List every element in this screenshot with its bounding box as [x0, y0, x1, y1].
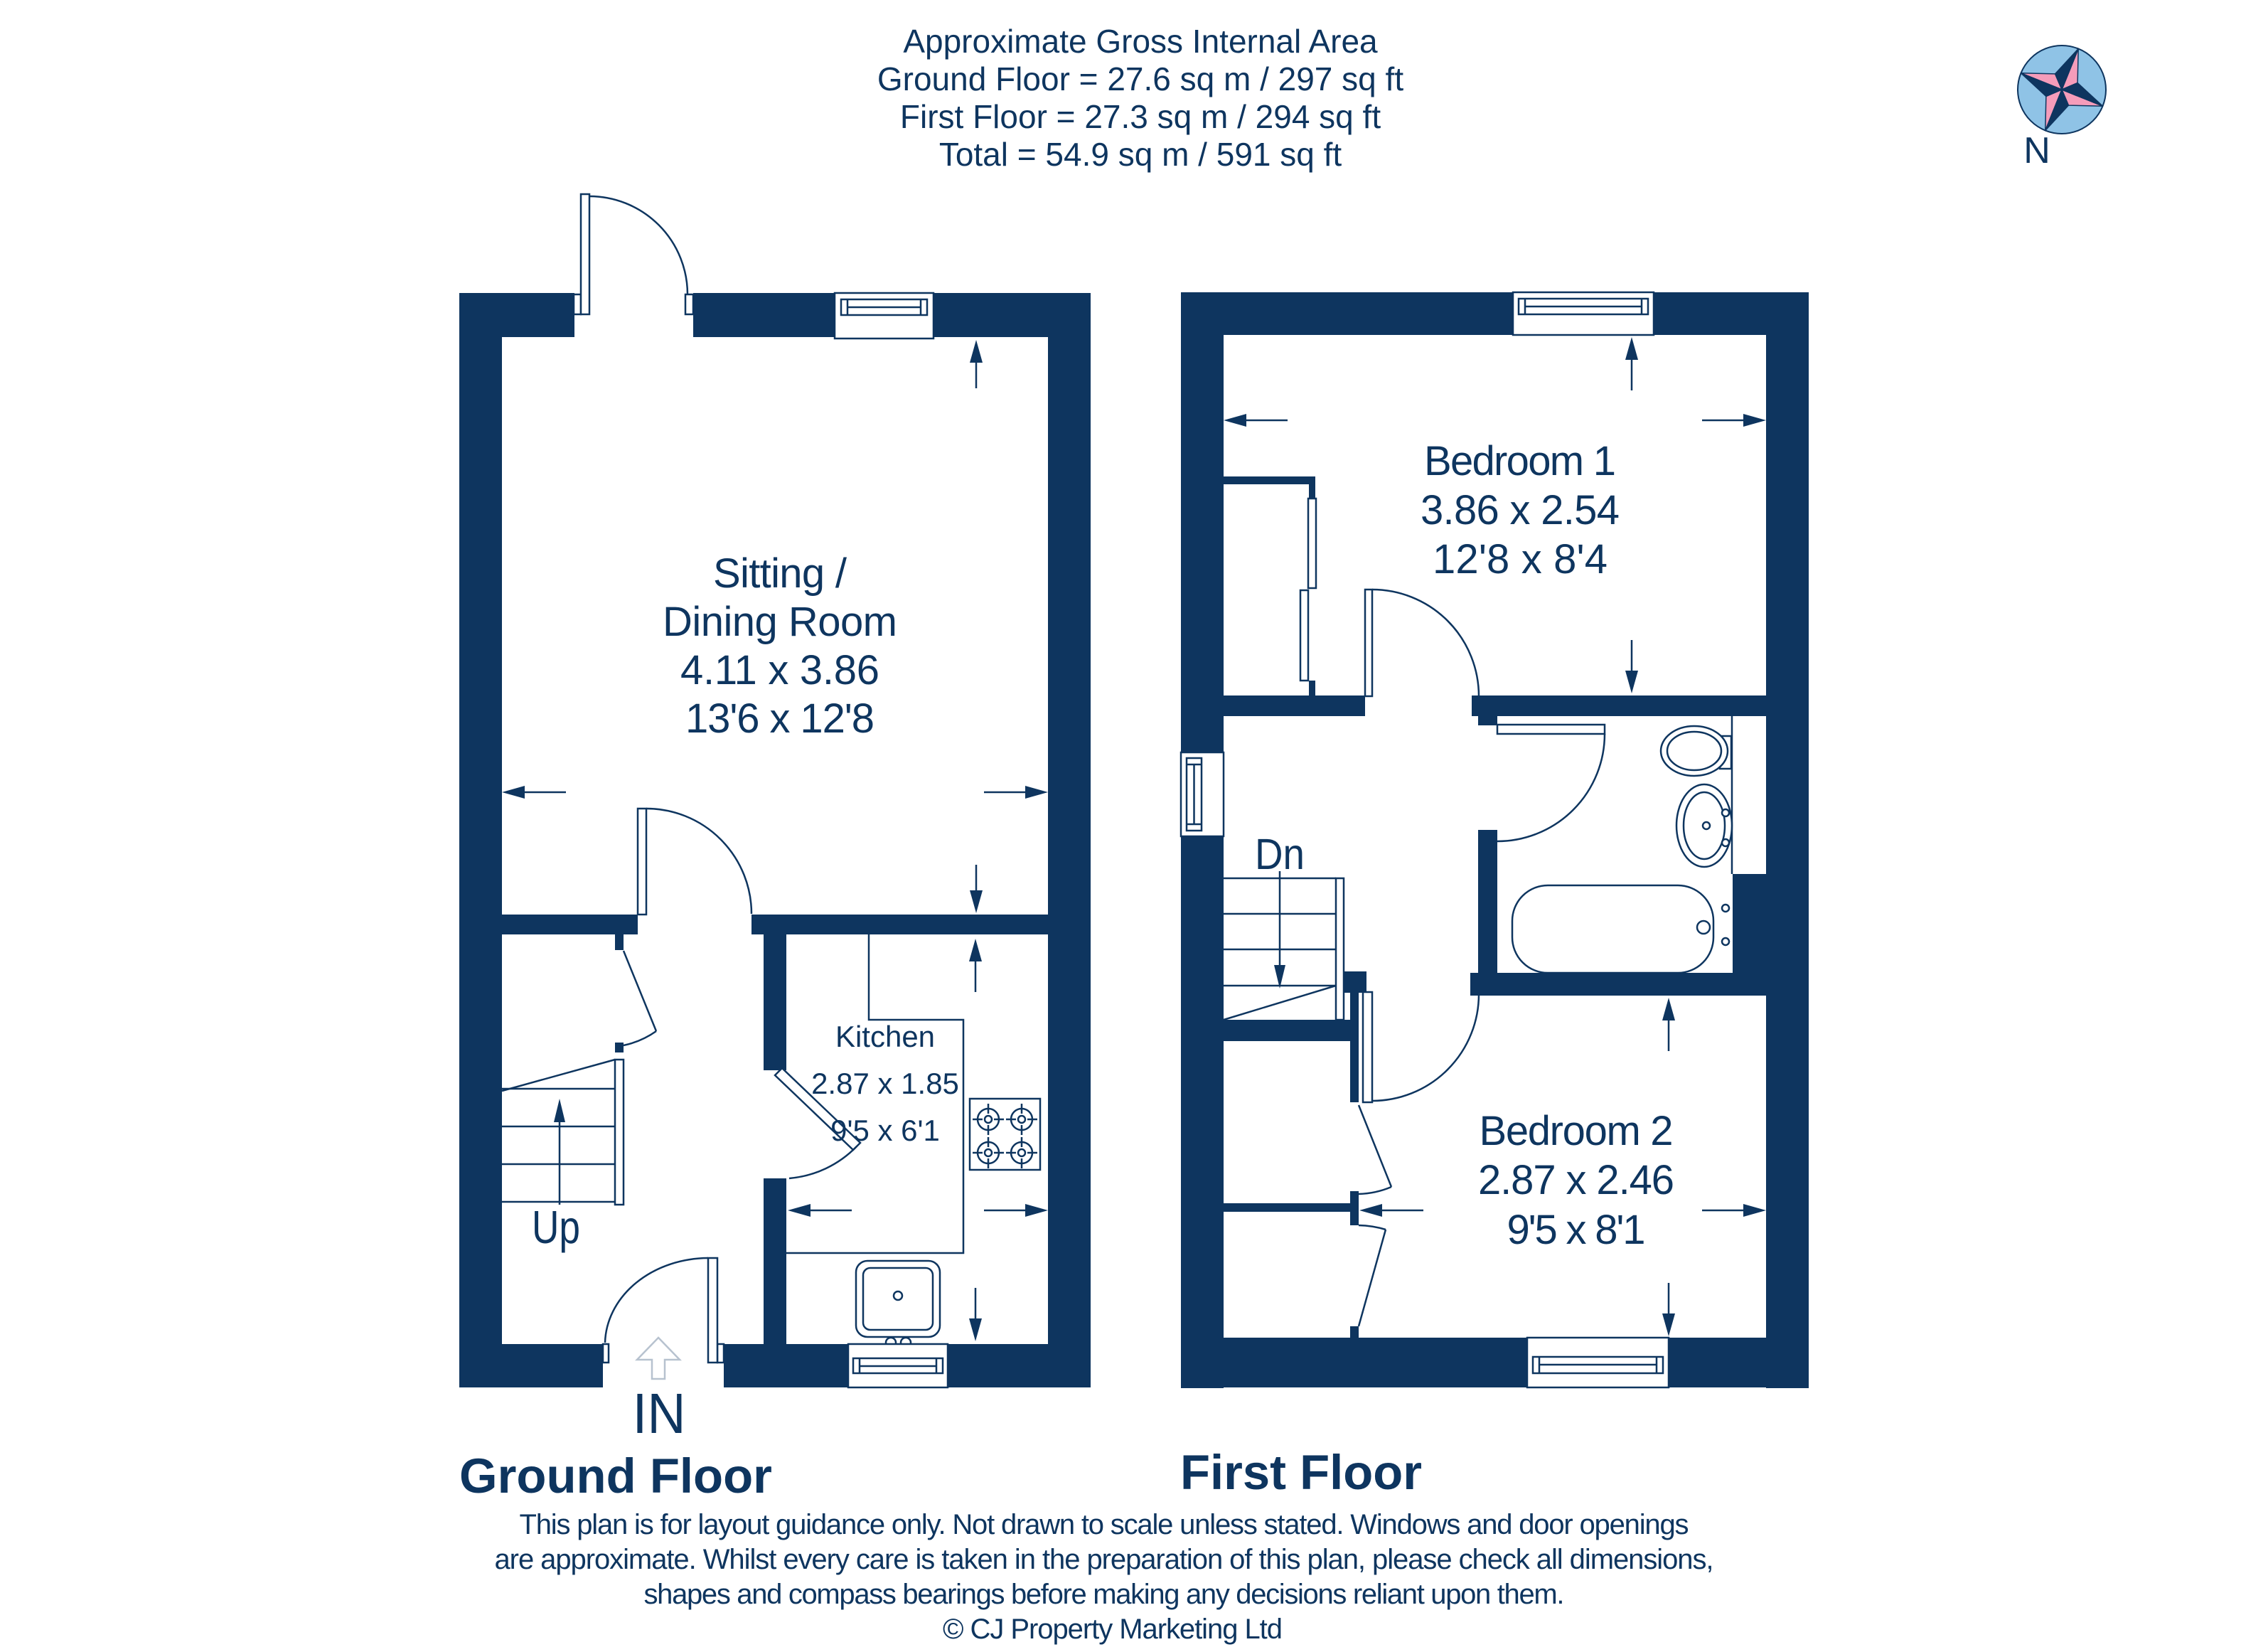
svg-text:First Floor = 27.3 sq m / 294: First Floor = 27.3 sq m / 294 sq ft	[900, 98, 1381, 135]
svg-text:9'5 x 6'1: 9'5 x 6'1	[830, 1114, 940, 1147]
svg-text:4.11 x 3.86: 4.11 x 3.86	[680, 647, 879, 693]
svg-text:are approximate. Whilst every: are approximate. Whilst every care is ta…	[495, 1544, 1714, 1575]
svg-text:9'5 x 8'1: 9'5 x 8'1	[1507, 1207, 1646, 1253]
svg-text:IN: IN	[633, 1382, 686, 1445]
svg-text:N: N	[2023, 130, 2050, 171]
svg-text:This plan is for layout guidan: This plan is for layout guidance only. N…	[520, 1509, 1689, 1540]
svg-text:Ground Floor: Ground Floor	[459, 1449, 772, 1503]
svg-text:3.86 x 2.54: 3.86 x 2.54	[1421, 487, 1620, 533]
svg-text:Total = 54.9 sq m / 591 sq ft: Total = 54.9 sq m / 591 sq ft	[939, 136, 1342, 173]
svg-text:Dn: Dn	[1255, 830, 1305, 878]
svg-text:Bedroom 2: Bedroom 2	[1480, 1108, 1674, 1154]
svg-text:Ground Floor = 27.6 sq m / 297: Ground Floor = 27.6 sq m / 297 sq ft	[877, 60, 1403, 97]
svg-text:2.87 x 2.46: 2.87 x 2.46	[1478, 1157, 1674, 1203]
svg-text:Bedroom 1: Bedroom 1	[1424, 438, 1616, 484]
svg-text:Sitting /: Sitting /	[713, 550, 847, 597]
svg-text:Approximate Gross Internal Are: Approximate Gross Internal Area	[903, 23, 1378, 60]
svg-text:Up: Up	[532, 1201, 580, 1253]
svg-text:First Floor: First Floor	[1180, 1445, 1422, 1500]
svg-text:© CJ Property Marketing Ltd: © CJ Property Marketing Ltd	[943, 1614, 1283, 1645]
svg-text:13'6 x 12'8: 13'6 x 12'8	[685, 695, 874, 742]
svg-text:shapes and compass bearings be: shapes and compass bearings before makin…	[644, 1579, 1565, 1610]
svg-text:Kitchen: Kitchen	[835, 1020, 935, 1053]
svg-text:12'8 x 8'4: 12'8 x 8'4	[1433, 536, 1608, 582]
svg-text:2.87 x 1.85: 2.87 x 1.85	[811, 1067, 959, 1100]
svg-text:Dining Room: Dining Room	[663, 599, 897, 645]
